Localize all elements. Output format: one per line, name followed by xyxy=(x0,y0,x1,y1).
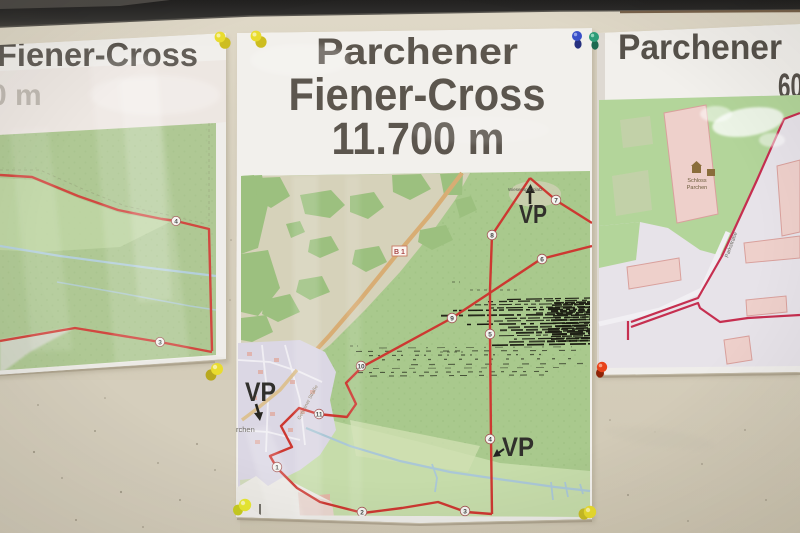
svg-text:VP: VP xyxy=(502,432,534,462)
svg-text:VP: VP xyxy=(245,377,276,407)
svg-text:4: 4 xyxy=(488,437,492,444)
svg-text:VP: VP xyxy=(519,199,547,229)
svg-text:7: 7 xyxy=(554,198,558,205)
svg-text:9: 9 xyxy=(450,316,454,323)
svg-text:B 1: B 1 xyxy=(394,249,405,256)
svg-text:6: 6 xyxy=(540,257,544,264)
svg-text:Wiesensportplatz: Wiesensportplatz xyxy=(508,187,543,192)
svg-text:Schloss: Schloss xyxy=(687,178,707,184)
svg-text:3: 3 xyxy=(463,509,467,516)
svg-text:Parchen: Parchen xyxy=(687,185,708,191)
svg-text:5: 5 xyxy=(488,332,492,339)
svg-text:Parchener: Parchener xyxy=(618,28,782,67)
svg-text:8: 8 xyxy=(490,233,494,240)
